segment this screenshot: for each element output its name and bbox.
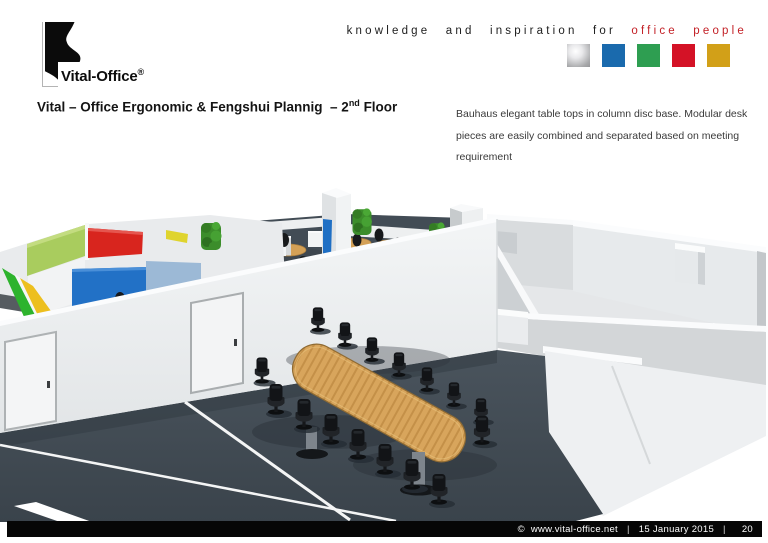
brand-square-blue	[602, 44, 625, 67]
pillar-column	[322, 188, 351, 258]
door-center	[191, 293, 243, 393]
vital-office-logo: Vital-Office®	[42, 22, 107, 87]
description-line: requirement	[456, 151, 747, 173]
brand-square-red	[672, 44, 695, 67]
tagline-dark: knowledge and inspiration for	[347, 25, 616, 37]
description: Bauhaus elegant table tops in column dis…	[456, 108, 747, 173]
footer-bar: © www.vital-office.net | 15 January 2015…	[7, 521, 762, 537]
brand-squares	[567, 44, 730, 67]
title-suffix: Floor	[360, 100, 398, 115]
title-superscript: nd	[349, 98, 360, 108]
footer-page-number: 20	[742, 524, 753, 535]
description-line: Bauhaus elegant table tops in column dis…	[456, 108, 747, 130]
footer-separator: |	[723, 524, 726, 535]
page-title: Vital – Office Ergonomic & Fengshui Plan…	[37, 98, 397, 115]
title-text: Vital – Office Ergonomic & Fengshui Plan…	[37, 100, 349, 115]
registered-mark: ®	[138, 67, 144, 77]
logo-wordmark: Vital-Office®	[58, 62, 146, 87]
logo-text: Vital-Office	[61, 68, 138, 85]
tagline: knowledge and inspiration for office peo…	[347, 25, 747, 37]
brand-square-gold	[707, 44, 730, 67]
brand-square-silver	[567, 44, 590, 67]
footer-date: 15 January 2015	[639, 524, 714, 535]
tagline-accent: office people	[631, 25, 747, 37]
description-line: pieces are easily combined and separated…	[456, 130, 747, 152]
brand-square-green	[637, 44, 660, 67]
footer-url: © www.vital-office.net	[518, 524, 618, 535]
door-left	[5, 332, 56, 430]
footer-separator: |	[627, 524, 630, 535]
